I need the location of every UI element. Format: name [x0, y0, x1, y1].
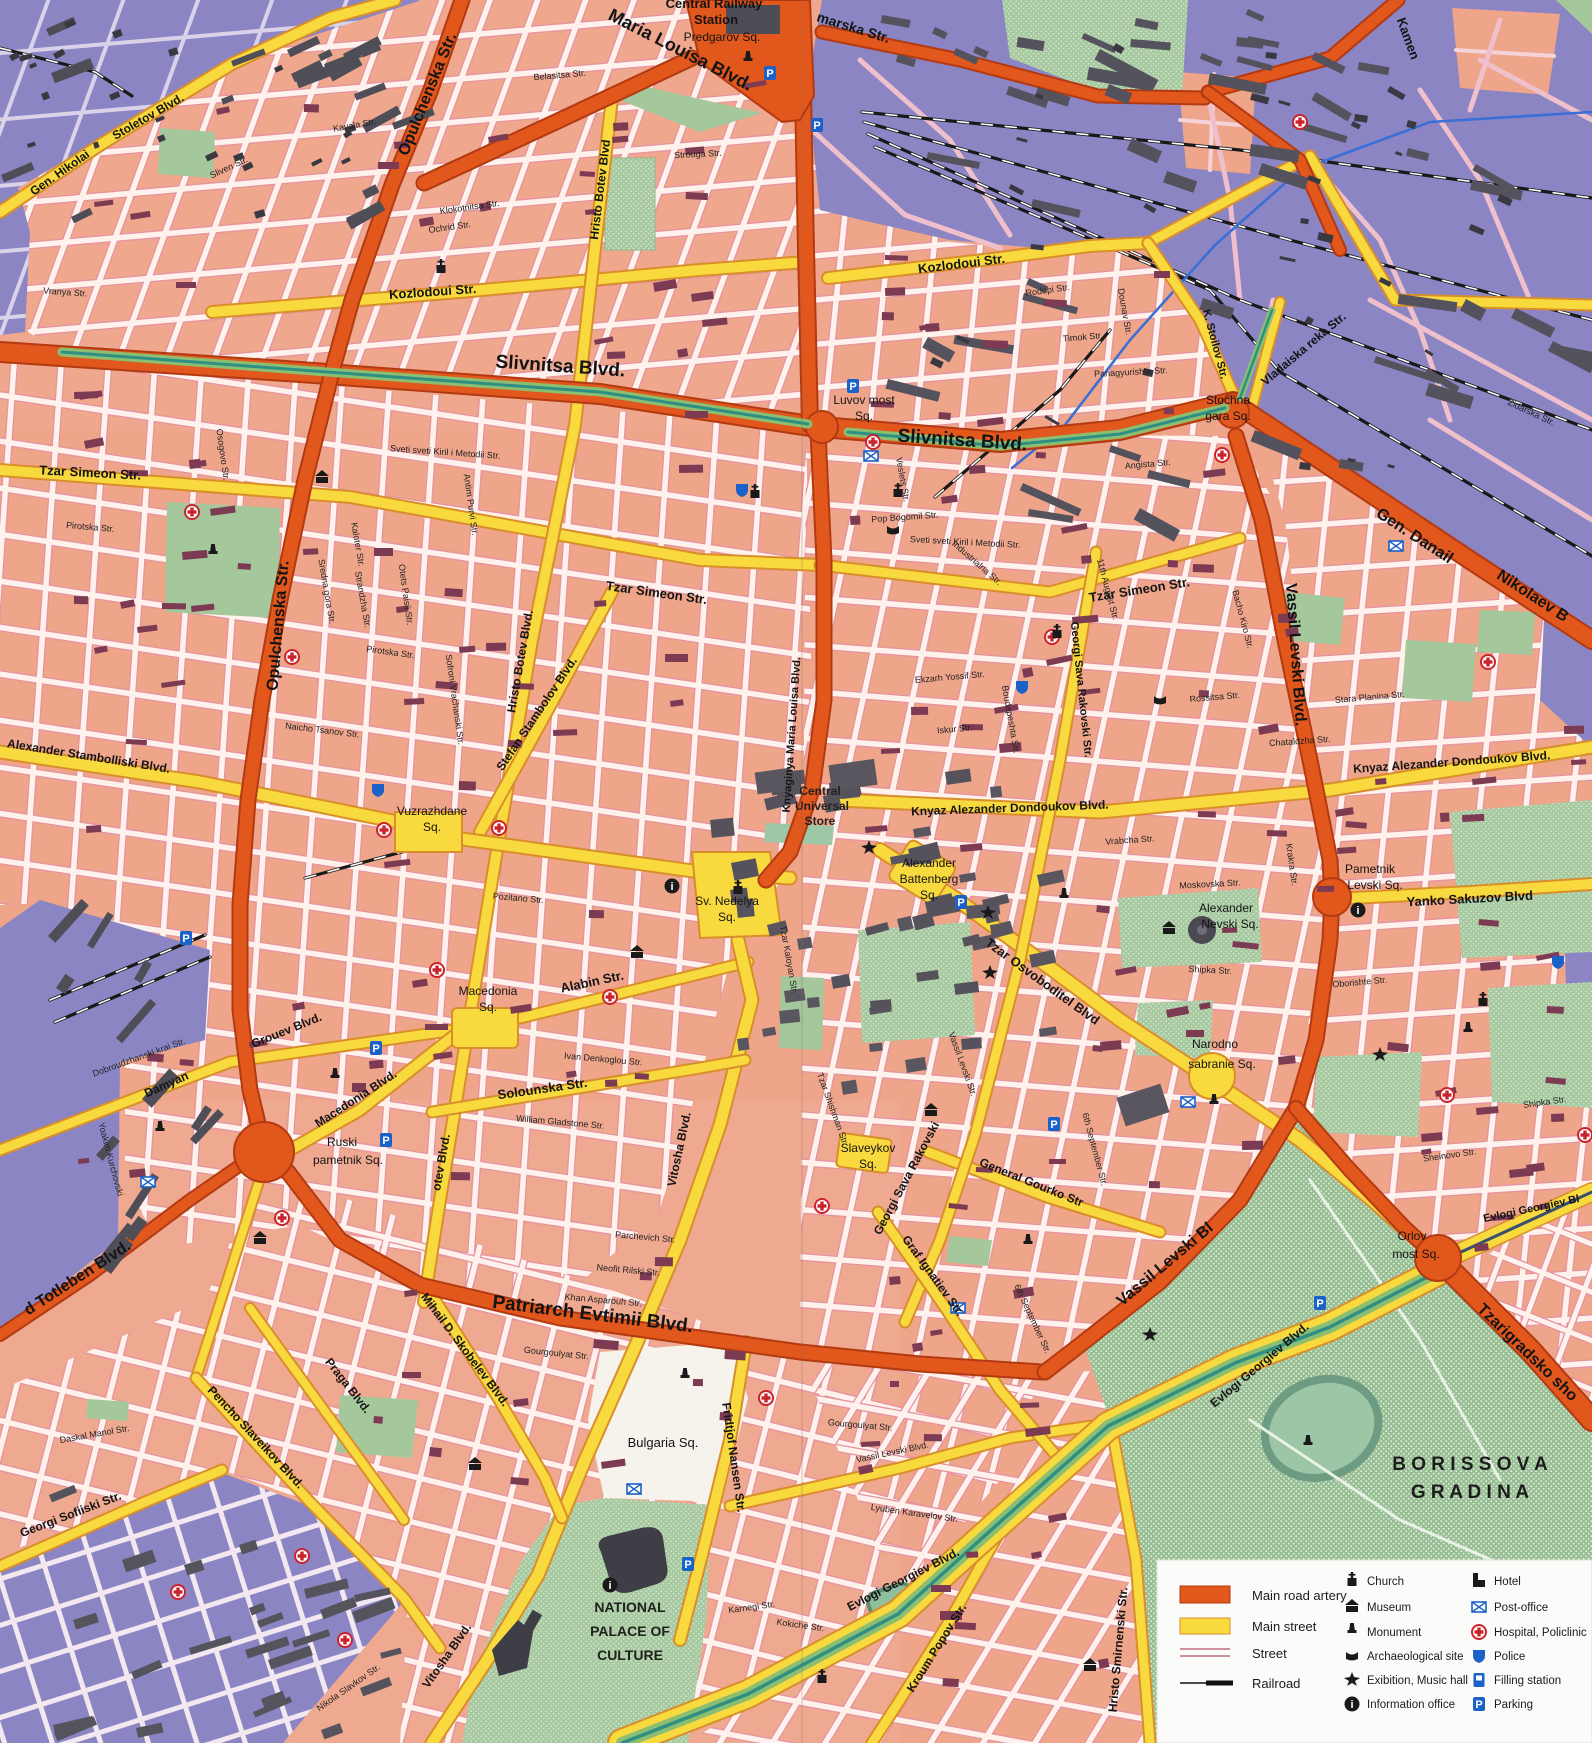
- svg-text:Church: Church: [1367, 1576, 1404, 1588]
- svg-text:P: P: [957, 897, 964, 909]
- svg-text:Orlov: Orlov: [1398, 1229, 1427, 1243]
- svg-text:P: P: [766, 68, 773, 80]
- svg-text:Street: Street: [1252, 1646, 1287, 1661]
- svg-text:P: P: [182, 933, 189, 945]
- svg-text:Bulgaria Sq.: Bulgaria Sq.: [628, 1435, 699, 1450]
- svg-text:P: P: [684, 1559, 691, 1571]
- svg-text:Narodno: Narodno: [1192, 1037, 1238, 1051]
- svg-text:B O R I S S O V A: B O R I S S O V A: [1392, 1454, 1548, 1475]
- svg-text:Sv. Nedelya: Sv. Nedelya: [695, 894, 759, 908]
- svg-text:Monument: Monument: [1367, 1627, 1422, 1639]
- svg-text:Filling station: Filling station: [1494, 1675, 1561, 1687]
- svg-text:Information office: Information office: [1367, 1699, 1455, 1711]
- svg-text:Sq.: Sq.: [859, 1157, 877, 1171]
- svg-text:Central: Central: [799, 784, 840, 798]
- svg-text:Sq.: Sq.: [479, 1000, 497, 1014]
- svg-text:Levski Sq.: Levski Sq.: [1347, 878, 1402, 892]
- svg-text:Ruski: Ruski: [327, 1135, 357, 1149]
- svg-text:Alexander: Alexander: [902, 856, 956, 870]
- svg-text:Hospital, Policlinic: Hospital, Policlinic: [1494, 1627, 1587, 1639]
- svg-text:Store: Store: [805, 814, 836, 828]
- svg-text:Stochna: Stochna: [1206, 393, 1250, 407]
- svg-text:Sq.: Sq.: [423, 820, 441, 834]
- svg-text:P: P: [1050, 1119, 1057, 1131]
- svg-text:Nevski Sq.: Nevski Sq.: [1201, 917, 1258, 931]
- svg-text:CULTURE: CULTURE: [597, 1647, 663, 1663]
- svg-text:P: P: [1475, 1699, 1482, 1711]
- svg-text:P: P: [813, 120, 820, 132]
- svg-text:Sq.: Sq.: [920, 888, 938, 902]
- svg-text:sabranie Sq.: sabranie Sq.: [1188, 1057, 1255, 1071]
- svg-text:PALACE OF: PALACE OF: [590, 1623, 670, 1639]
- svg-text:Parking: Parking: [1494, 1699, 1533, 1711]
- svg-text:Main street: Main street: [1252, 1619, 1317, 1634]
- svg-text:Battenberg: Battenberg: [900, 872, 959, 886]
- svg-text:Central Railway: Central Railway: [666, 0, 764, 11]
- svg-text:i: i: [1350, 1699, 1353, 1711]
- svg-text:gara Sq.: gara Sq.: [1205, 409, 1250, 423]
- svg-text:Vuzrazhdane: Vuzrazhdane: [397, 804, 468, 818]
- svg-text:i: i: [1356, 905, 1359, 917]
- svg-text:NATIONAL: NATIONAL: [594, 1599, 666, 1615]
- svg-text:Museum: Museum: [1367, 1602, 1411, 1614]
- svg-text:Macedonia: Macedonia: [459, 984, 518, 998]
- svg-text:Main road artery: Main road artery: [1252, 1588, 1347, 1603]
- svg-text:i: i: [608, 1580, 611, 1592]
- svg-text:Pametnik: Pametnik: [1345, 862, 1396, 876]
- svg-text:most Sq.: most Sq.: [1392, 1247, 1439, 1261]
- svg-text:Railroad: Railroad: [1252, 1676, 1300, 1691]
- svg-text:Luvov most: Luvov most: [833, 393, 895, 407]
- svg-text:i: i: [670, 881, 673, 893]
- svg-text:Universal: Universal: [795, 799, 849, 813]
- svg-text:Station: Station: [694, 12, 738, 27]
- svg-text:P: P: [1316, 1298, 1323, 1310]
- svg-text:P: P: [849, 381, 856, 393]
- svg-text:Hotel: Hotel: [1494, 1576, 1521, 1588]
- svg-text:P: P: [372, 1043, 379, 1055]
- svg-text:Post-office: Post-office: [1494, 1602, 1548, 1614]
- svg-text:pametnik Sq.: pametnik Sq.: [313, 1153, 383, 1167]
- svg-text:P: P: [382, 1135, 389, 1147]
- svg-text:Alexander: Alexander: [1199, 901, 1253, 915]
- svg-text:Sq.: Sq.: [718, 910, 736, 924]
- svg-text:Predgarov Sq.: Predgarov Sq.: [684, 30, 761, 44]
- svg-text:Sq.: Sq.: [855, 409, 873, 423]
- svg-text:G R A D I N A: G R A D I N A: [1411, 1482, 1530, 1503]
- svg-text:Exibition, Music hall: Exibition, Music hall: [1367, 1675, 1468, 1687]
- svg-text:Archaeological site: Archaeological site: [1367, 1651, 1464, 1663]
- svg-text:Police: Police: [1494, 1651, 1525, 1663]
